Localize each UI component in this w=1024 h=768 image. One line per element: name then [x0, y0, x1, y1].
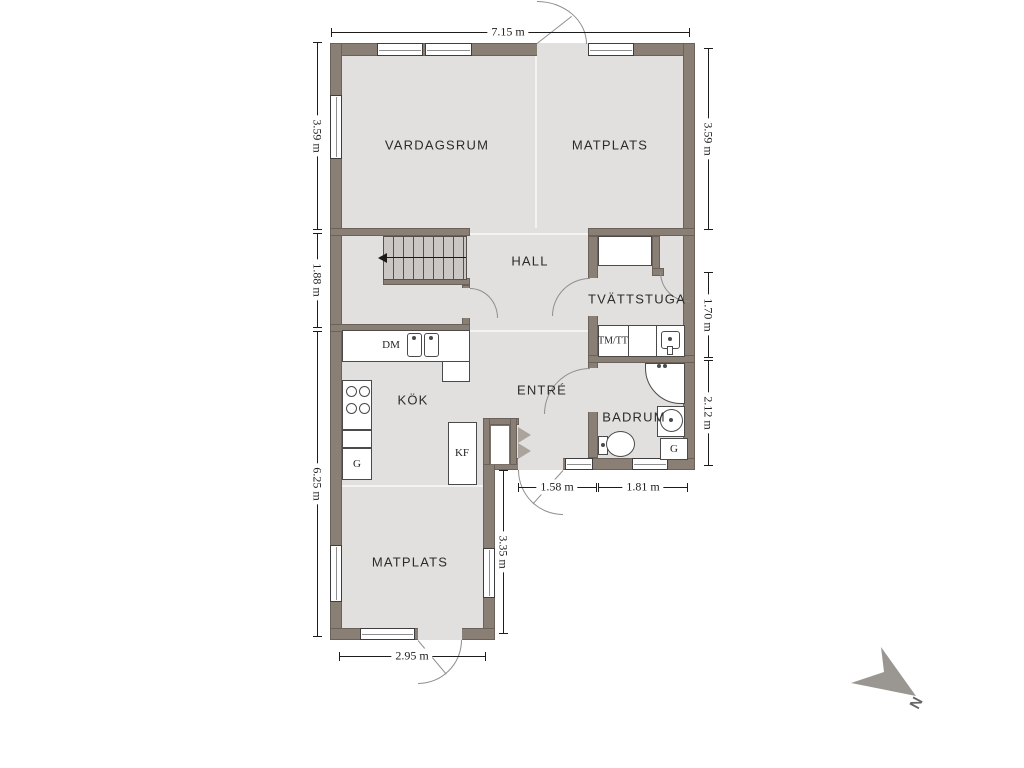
- stove-burner: [346, 403, 357, 414]
- window-left-lower: [330, 545, 342, 602]
- divider-vardagsrum-matplats: [535, 56, 537, 228]
- compass-north-arrow: [840, 632, 950, 727]
- bifold-door-lower: [518, 443, 531, 459]
- stove-burner: [359, 386, 370, 397]
- window-wing-bottom: [360, 628, 415, 640]
- stairs: [383, 236, 467, 280]
- room-label-vardagsrum: VARDAGSRUM: [385, 138, 489, 153]
- bifold-door-upper: [518, 427, 531, 443]
- dim-left-lower-label: 6.25 m: [310, 463, 325, 504]
- laundry-sink-drain: [667, 346, 673, 355]
- window-top-3: [588, 43, 634, 56]
- laundry-sink-faucet: [668, 337, 672, 341]
- entre-closet-interior: [490, 425, 510, 465]
- stairs-direction-line: [385, 257, 466, 258]
- room-label-kok: KÖK: [397, 393, 428, 408]
- dim-right-upper-label: 3.59 m: [701, 118, 716, 159]
- kitchen-sink-faucet-right: [429, 336, 433, 340]
- dim-entre-width-label: 1.58 m: [536, 480, 577, 495]
- dim-right-lower-label: 2.12 m: [701, 392, 716, 433]
- kitchen-counter-right: [442, 361, 470, 382]
- wall-entre-closet-right: [510, 418, 517, 465]
- opening-hall-door: [462, 288, 470, 318]
- wall-center-vertical: [588, 236, 598, 458]
- window-entre-bottom: [565, 458, 593, 470]
- laundry-counter-divider: [628, 326, 629, 356]
- dim-wing-width-label: 2.95 m: [391, 649, 432, 664]
- kitchen-sink-faucet-left: [412, 336, 416, 340]
- opening-main-entrance-top: [537, 43, 588, 56]
- kitchen-counter-left: [342, 430, 372, 448]
- label-fridge-freezer: KF: [455, 447, 469, 459]
- toilet-bowl: [606, 431, 635, 457]
- room-label-hall: HALL: [511, 254, 548, 269]
- wall-entre-closet-left: [483, 418, 490, 465]
- room-label-badrum: BADRUM: [602, 410, 666, 425]
- room-label-matplats-lower: MATPLATS: [372, 555, 448, 570]
- window-top-2: [425, 43, 472, 56]
- laundry-counter-divider: [656, 326, 657, 356]
- dim-wing-height-label: 3.35 m: [496, 531, 511, 572]
- room-label-matplats-upper: MATPLATS: [572, 138, 648, 153]
- floorplan-canvas: VARDAGSRUM MATPLATS HALL TVÄTTSTUGA KÖK …: [0, 0, 1024, 768]
- label-wardrobe-bathroom: G: [670, 443, 678, 455]
- stove-burner: [359, 403, 370, 414]
- dim-badrum-width-label: 1.81 m: [622, 480, 663, 495]
- window-top-1: [377, 43, 423, 56]
- dim-left-middle-label: 1.88 m: [310, 259, 325, 300]
- stairs-direction-arrow: [378, 253, 387, 263]
- window-wing-right: [483, 548, 495, 598]
- shower-faucet: [663, 364, 667, 368]
- label-wardrobe-kitchen: G: [353, 458, 361, 470]
- toilet-flush-button: [601, 443, 605, 447]
- window-left-upper: [330, 95, 342, 159]
- tvattstuga-closet: [598, 236, 652, 266]
- dim-left-upper-label: 3.59 m: [310, 115, 325, 156]
- stove-burner: [346, 386, 357, 397]
- kitchen-counter-top: [342, 330, 470, 362]
- room-label-tvattstuga: TVÄTTSTUGA: [588, 292, 686, 307]
- opening-front-door: [518, 458, 563, 470]
- divider-hall-top: [470, 233, 588, 235]
- divider-kok-matplats: [342, 485, 483, 487]
- bathroom-basin-drain: [669, 418, 673, 422]
- dim-top-width-label: 7.15 m: [487, 25, 528, 40]
- wall-matplats-tvattstuga: [588, 228, 695, 236]
- floor-lower-wing: [336, 464, 489, 634]
- room-label-entre: ENTRÉ: [517, 383, 567, 398]
- shower-faucet: [657, 364, 661, 368]
- wall-vardagsrum-bottom: [330, 228, 470, 236]
- label-washer-dryer: TM/TT: [598, 336, 628, 347]
- opening-wing-door: [418, 628, 462, 640]
- divider-hall-entre: [470, 330, 588, 332]
- dim-right-middle-label: 1.70 m: [701, 294, 716, 335]
- label-dishwasher: DM: [382, 339, 400, 351]
